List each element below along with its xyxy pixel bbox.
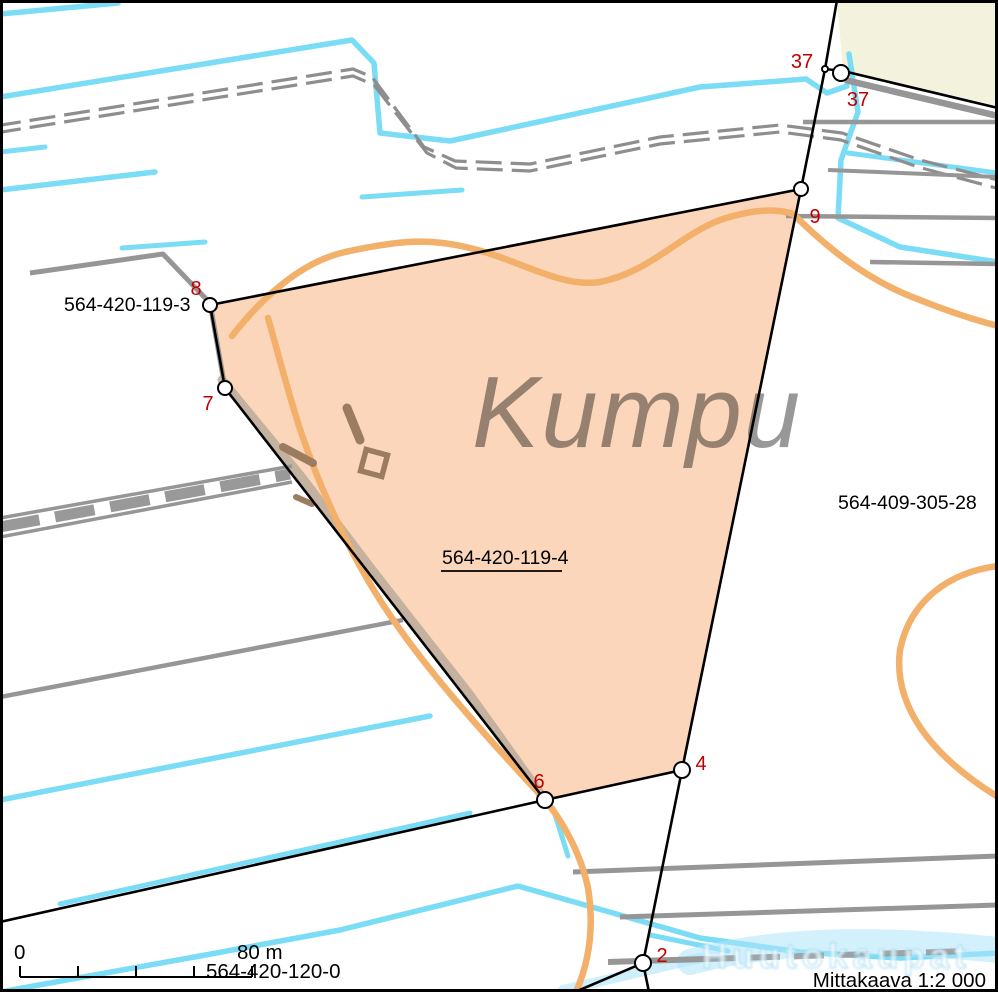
map-canvas: Kumpu 8 7 6 4 9 37 37 2 564-420-119-3 56…: [0, 0, 998, 992]
scale-bar-zero-label: 0: [14, 941, 25, 964]
parcel-id-label-target: 564-420-119-4: [442, 547, 569, 569]
boundary-point-marker-6: [537, 792, 553, 808]
parcel-id-label-south: 564-420-120-0: [206, 960, 341, 983]
marker-label-7: 7: [202, 393, 213, 415]
cadastral-map: Kumpu 8 7 6 4 9 37 37 2 564-420-119-3 56…: [0, 0, 998, 992]
marker-label-9: 9: [809, 206, 820, 228]
marker-label-6: 6: [533, 771, 544, 793]
boundary-point-marker-4: [674, 762, 690, 778]
place-name-label: Kumpu: [472, 357, 802, 469]
boundary-point-marker-37a: [822, 66, 828, 72]
marker-label-2: 2: [656, 945, 667, 967]
marker-label-37a: 37: [791, 51, 813, 73]
marker-label-8: 8: [190, 278, 201, 300]
boundary-point-marker-9: [794, 182, 808, 196]
parcel-id-label-east: 564-409-305-28: [838, 492, 977, 514]
scale-caption: Mittakaava 1:2 000: [813, 969, 986, 992]
marker-label-4: 4: [695, 753, 706, 775]
boundary-point-marker-7: [218, 381, 232, 395]
marker-label-37b: 37: [847, 89, 869, 111]
boundary-point-marker-2: [635, 955, 651, 971]
boundary-point-marker-37b: [833, 65, 849, 81]
road-line: [870, 262, 998, 264]
parcel-id-label-west: 564-420-119-3: [64, 294, 190, 316]
boundary-point-marker-8: [203, 298, 217, 312]
